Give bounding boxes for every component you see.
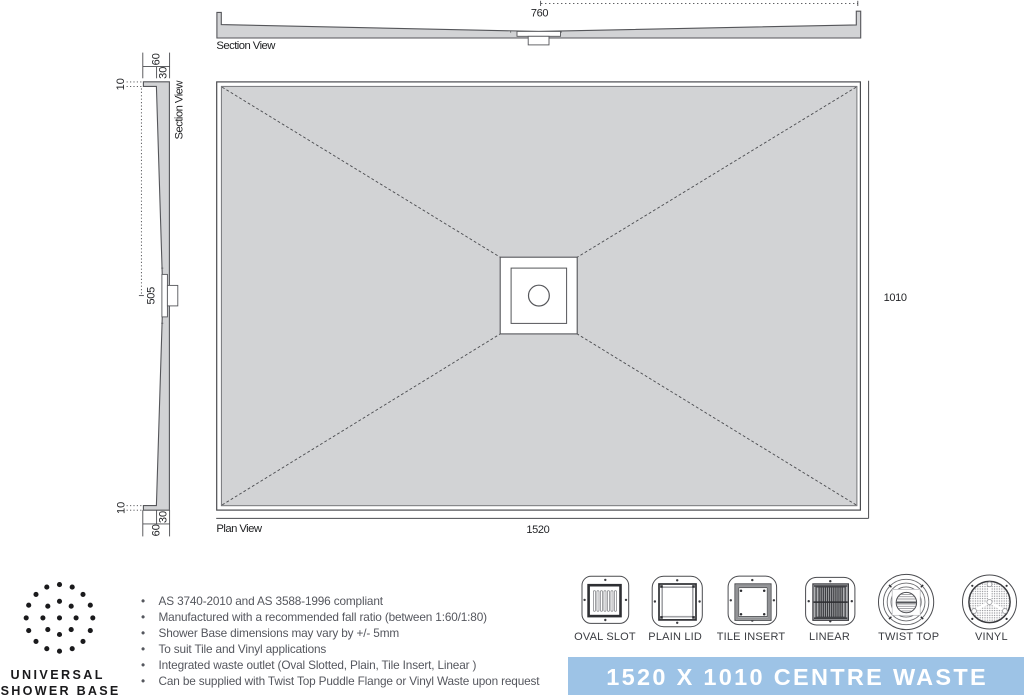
svg-text:60: 60 [150,53,162,65]
svg-text:Section View: Section View [174,80,186,140]
svg-text:505: 505 [146,287,158,305]
svg-text:10: 10 [115,502,127,514]
svg-text:1010: 1010 [884,292,907,304]
svg-text:760: 760 [531,8,549,20]
svg-text:10: 10 [115,78,127,90]
svg-text:Section View: Section View [216,40,276,52]
svg-text:1520: 1520 [526,524,549,536]
svg-text:Plan View: Plan View [216,523,262,535]
svg-text:30: 30 [158,511,170,523]
svg-text:60: 60 [150,524,162,536]
svg-text:30: 30 [158,67,170,79]
